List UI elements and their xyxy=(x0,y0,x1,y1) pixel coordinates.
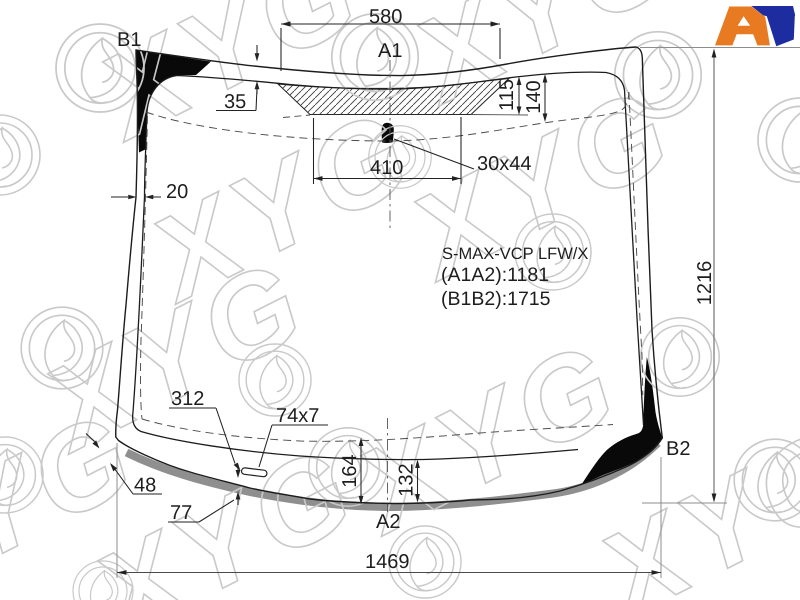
svg-text:1469: 1469 xyxy=(365,551,410,573)
svg-text:48: 48 xyxy=(134,475,156,497)
svg-text:140: 140 xyxy=(523,80,545,113)
svg-text:312: 312 xyxy=(171,388,204,410)
svg-text:B1: B1 xyxy=(117,29,141,51)
svg-text:A2: A2 xyxy=(376,511,400,533)
svg-text:77: 77 xyxy=(170,502,192,524)
svg-text:35: 35 xyxy=(224,91,246,113)
svg-text:132: 132 xyxy=(396,463,418,496)
svg-text:1216: 1216 xyxy=(694,261,716,306)
svg-text:(A1A2):1181: (A1A2):1181 xyxy=(441,264,549,286)
svg-text:410: 410 xyxy=(370,157,403,179)
svg-text:74x7: 74x7 xyxy=(276,405,319,427)
svg-text:164: 164 xyxy=(339,454,361,487)
svg-text:(B1B2):1715: (B1B2):1715 xyxy=(441,288,551,310)
svg-text:580: 580 xyxy=(369,6,402,28)
svg-text:S-MAX-VCP LFW/X: S-MAX-VCP LFW/X xyxy=(442,245,588,263)
svg-text:20: 20 xyxy=(166,181,188,203)
svg-text:115: 115 xyxy=(496,79,518,111)
svg-text:30x44: 30x44 xyxy=(477,153,532,175)
svg-text:B2: B2 xyxy=(666,438,690,460)
svg-text:A1: A1 xyxy=(378,40,402,62)
